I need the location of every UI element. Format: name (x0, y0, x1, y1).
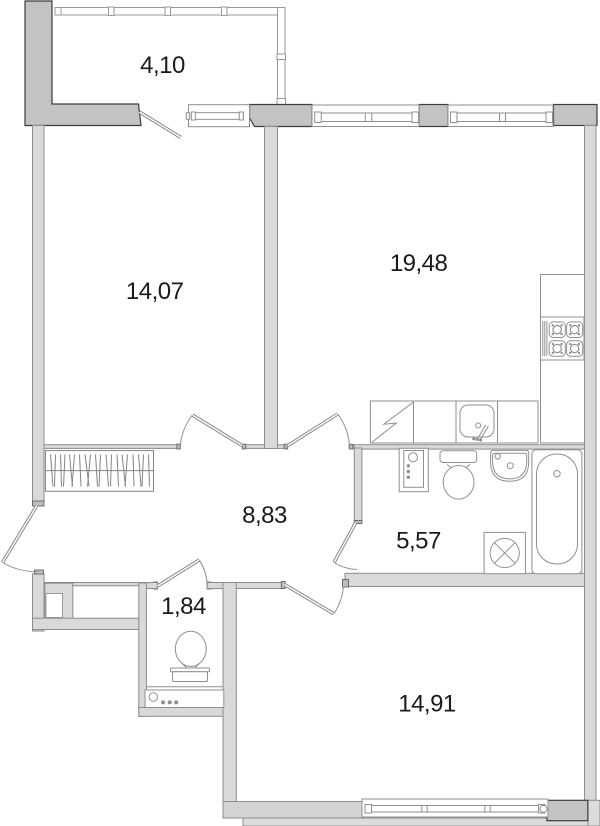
svg-text:14,91: 14,91 (398, 691, 456, 718)
svg-text:14,07: 14,07 (126, 278, 184, 305)
svg-text:4,10: 4,10 (140, 52, 185, 79)
svg-text:8,83: 8,83 (242, 502, 287, 529)
svg-text:1,84: 1,84 (161, 593, 206, 620)
svg-text:5,57: 5,57 (396, 528, 441, 555)
svg-text:19,48: 19,48 (390, 250, 448, 277)
